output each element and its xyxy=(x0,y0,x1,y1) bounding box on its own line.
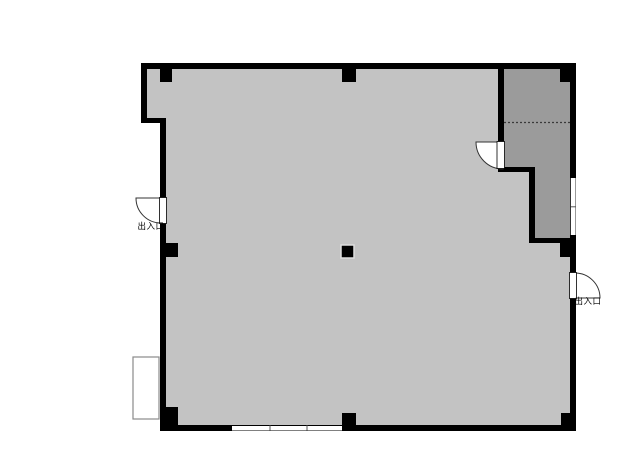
left-entrance-label: 出入口 xyxy=(137,221,164,232)
floor-plan-svg: 出入口 出入口 xyxy=(0,0,640,453)
bottom-window-glass xyxy=(232,426,342,431)
column-bottom-left xyxy=(166,407,178,425)
right-entrance-label: 出入口 xyxy=(574,296,601,307)
bottom-wall-window xyxy=(232,425,342,431)
storage-door-leaf xyxy=(497,142,505,169)
column-top-center xyxy=(342,69,356,82)
exterior-fixture-rect xyxy=(133,357,159,419)
column-bottom-right xyxy=(561,413,570,425)
column-top-left xyxy=(160,69,172,82)
left-door-leaf xyxy=(160,198,167,224)
floor-plan-image: 出入口 出入口 xyxy=(0,0,640,453)
column-center xyxy=(341,245,354,258)
right-door-leaf xyxy=(570,273,577,299)
right-wall-window xyxy=(571,178,577,235)
column-bottom-center xyxy=(342,413,356,425)
column-mid-right xyxy=(560,242,570,257)
column-mid-left xyxy=(166,243,178,257)
